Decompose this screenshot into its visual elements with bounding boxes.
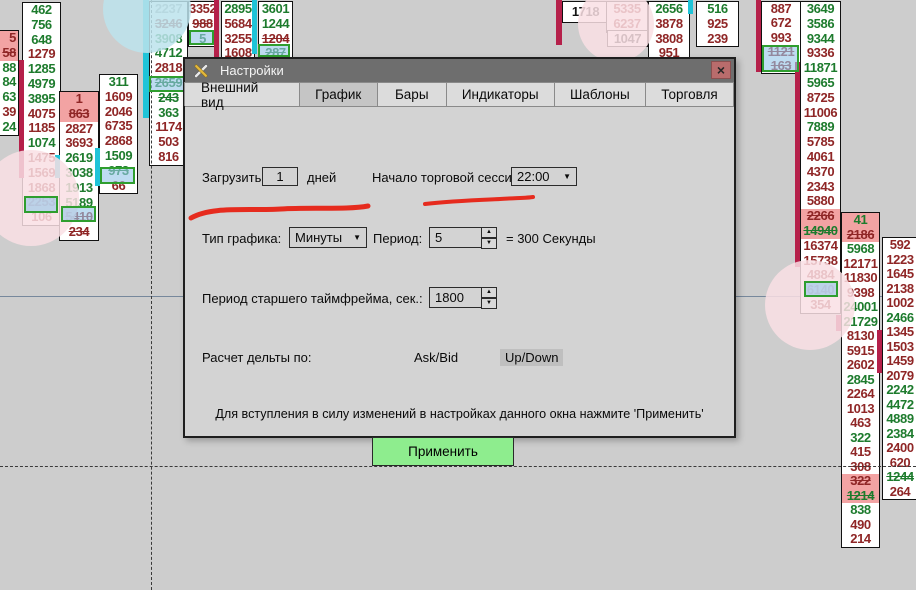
volume-cell: 1718 <box>563 2 608 22</box>
volume-cell: 2818 <box>150 61 187 76</box>
volume-cell: 3895 <box>23 92 60 107</box>
volume-cell: 838 <box>842 503 879 518</box>
volume-cell: 3255 <box>222 32 254 47</box>
volume-cell: 503 <box>150 135 187 150</box>
sell-volume-bar <box>756 0 761 72</box>
volume-cell: 2384 <box>883 427 916 442</box>
volume-cell: 620 <box>883 456 916 471</box>
volume-cell: 3586 <box>801 17 840 32</box>
tab-4[interactable]: Индикаторы <box>446 82 555 106</box>
volume-cell: 3352 <box>189 2 216 17</box>
volume-cell: 9336 <box>801 46 840 61</box>
cluster-column: 2895568432551608 <box>221 1 255 62</box>
volume-cell: 592 <box>883 238 916 253</box>
volume-cell: 2845 <box>842 373 879 388</box>
volume-cell: 1279 <box>23 47 60 62</box>
volume-cell: 462 <box>23 3 60 18</box>
volume-cell: 39 <box>0 105 18 120</box>
cluster-column: 4121865968121711183093982400121729813059… <box>841 212 880 548</box>
buy-volume-bar <box>143 0 149 118</box>
period-input[interactable]: 5 <box>429 227 482 248</box>
sell-volume-bar <box>877 330 882 373</box>
volume-cell: 4889 <box>883 412 916 427</box>
dialog-titlebar[interactable]: Настройки × <box>185 59 734 82</box>
volume-cell: 756 <box>23 18 60 33</box>
seconds-equivalent-label: = 300 Секунды <box>506 231 596 246</box>
sell-volume-bar <box>556 0 562 45</box>
cluster-column: 1718 <box>562 1 609 23</box>
volume-cell: 2659 <box>150 76 187 91</box>
marker-circle <box>578 0 654 62</box>
cluster-column: 3649358693449336118715965872511006788957… <box>800 1 841 314</box>
volume-cell: 264 <box>883 485 916 500</box>
volume-cell: 5189 <box>60 196 98 211</box>
spin-down-button[interactable]: ▼ <box>481 298 497 309</box>
volume-cell: 234 <box>60 225 98 240</box>
cluster-column: 5588884633924 <box>0 30 19 136</box>
volume-cell: 1503 <box>883 340 916 355</box>
volume-cell: 1174 <box>150 120 187 135</box>
cluster-column: 33529885 <box>188 1 217 47</box>
volume-cell: 84 <box>0 75 18 90</box>
volume-cell: 2602 <box>842 358 879 373</box>
cluster-column: 4627566481279128549793895407511851074147… <box>22 2 61 226</box>
tab-6[interactable]: Торговля <box>645 82 734 106</box>
volume-cell: 1913 <box>60 181 98 196</box>
chart-type-label: Тип графика: <box>202 231 281 246</box>
volume-cell: 5785 <box>801 135 840 150</box>
load-label: Загрузить <box>202 170 261 185</box>
cluster-column: 8876729931121163 <box>761 1 801 74</box>
volume-cell: 14940 <box>801 224 840 239</box>
volume-cell: 415 <box>842 445 879 460</box>
volume-cell: 5410 <box>60 210 98 225</box>
volume-cell: 7889 <box>801 120 840 135</box>
marker-circle <box>765 260 855 350</box>
volume-cell: 66 <box>100 179 137 194</box>
dialog-body: Загрузить 1 дней Начало торговой сессии:… <box>185 107 734 439</box>
volume-cell: 1459 <box>883 354 916 369</box>
chevron-down-icon: ▼ <box>563 172 576 181</box>
selected-cell-box <box>149 76 185 92</box>
volume-cell: 4075 <box>23 107 60 122</box>
volume-cell: 1204 <box>259 32 292 47</box>
volume-cell: 3038 <box>60 166 98 181</box>
volume-cell: 672 <box>762 16 800 30</box>
days-label: дней <box>307 170 336 185</box>
volume-cell: 4979 <box>23 77 60 92</box>
volume-cell: 9398 <box>842 286 879 301</box>
selected-cell-box <box>189 30 214 45</box>
volume-cell: 354 <box>801 298 840 313</box>
buy-volume-bar <box>252 0 257 54</box>
volume-cell: 463 <box>842 416 879 431</box>
cluster-column: 360112441204287 <box>258 1 293 62</box>
volume-cell: 5684 <box>222 17 254 32</box>
volume-cell: 2895 <box>222 2 254 17</box>
volume-cell: 988 <box>189 17 216 32</box>
volume-cell: 163 <box>762 59 800 73</box>
volume-cell: 1569 <box>23 166 60 181</box>
volume-cell: 1121 <box>762 45 800 59</box>
settings-dialog: Настройки × Внешний видГрафикБарыИндикат… <box>183 57 736 438</box>
volume-cell: 16374 <box>801 239 840 254</box>
dialog-title: Настройки <box>220 63 284 78</box>
volume-cell: 4712 <box>150 46 187 61</box>
volume-cell: 8130 <box>842 329 879 344</box>
volume-cell: 63 <box>0 90 18 105</box>
volume-cell: 24001 <box>842 300 879 315</box>
cluster-column: 3111609204667352868150997366 <box>99 74 138 194</box>
session-start-select[interactable]: 22:00 ▼ <box>511 167 577 186</box>
tools-icon <box>192 62 210 80</box>
volume-cell: 8725 <box>801 91 840 106</box>
volume-cell: 214 <box>842 532 879 547</box>
volume-cell: 6735 <box>100 119 137 134</box>
volume-cell: 1074 <box>23 136 60 151</box>
volume-cell: 1185 <box>23 121 60 136</box>
volume-cell: 24 <box>0 120 18 135</box>
tab-5[interactable]: Шаблоны <box>554 82 646 106</box>
volume-cell: 1047 <box>608 31 647 46</box>
sell-volume-bar <box>795 62 800 267</box>
period-label: Период: <box>373 231 422 246</box>
volume-cell: 311 <box>100 75 137 90</box>
volume-cell: 816 <box>150 150 187 165</box>
volume-cell: 1509 <box>100 149 137 164</box>
volume-cell: 11830 <box>842 271 879 286</box>
volume-cell: 490 <box>842 518 879 533</box>
volume-cell: 239 <box>697 32 738 47</box>
volume-cell: 5915 <box>842 344 879 359</box>
volume-cell: 2466 <box>883 311 916 326</box>
dialog-tabs: Внешний видГрафикБарыИндикаторыШаблоныТо… <box>185 82 734 107</box>
htf-period-spinner: 1800 ▲ ▼ <box>429 287 497 308</box>
delta-calc-label: Расчет дельты по: <box>202 350 311 365</box>
volume-cell: 1868 <box>23 181 60 196</box>
volume-cell: 11006 <box>801 106 840 121</box>
volume-cell: 1 <box>60 92 98 107</box>
selected-cell-box <box>762 45 799 72</box>
volume-cell: 2253 <box>23 195 60 210</box>
cluster-column: 1047 <box>607 30 648 47</box>
volume-cell: 2827 <box>60 122 98 137</box>
cluster-column: 53356237 <box>606 1 648 33</box>
cluster-column: 18632827369326193038191351895410234 <box>59 91 99 241</box>
cluster-column: 516925239 <box>696 1 739 47</box>
volume-cell: 3693 <box>60 136 98 151</box>
volume-cell: 2186 <box>842 228 879 243</box>
marker-circle <box>0 150 79 246</box>
cluster-column: 265638783808951 <box>648 1 690 62</box>
buy-volume-bar <box>55 155 60 178</box>
chevron-down-icon: ▼ <box>353 233 366 242</box>
volume-cell: 58 <box>0 46 18 61</box>
trading-app-screen: { "dialog": { "title": "Настройки", "clo… <box>0 0 916 590</box>
volume-cell: 2237 <box>150 2 187 17</box>
volume-cell: 1223 <box>883 253 916 268</box>
volume-cell: 3601 <box>259 2 292 17</box>
sell-volume-bar <box>214 0 219 57</box>
volume-cell: 1214 <box>842 489 879 504</box>
spin-up-button[interactable]: ▲ <box>481 227 497 238</box>
buy-volume-bar <box>95 148 100 186</box>
volume-cell: 993 <box>762 31 800 45</box>
volume-cell: 2138 <box>883 282 916 297</box>
volume-cell: 973 <box>100 164 137 179</box>
tab-3[interactable]: Бары <box>377 82 447 106</box>
volume-cell: 3908 <box>150 32 187 47</box>
volume-cell: 516 <box>697 2 738 17</box>
delta-updown-option[interactable]: Up/Down <box>500 349 563 366</box>
selected-cell-box <box>24 196 58 213</box>
volume-cell: 322 <box>842 431 879 446</box>
chart-type-select[interactable]: Минуты ▼ <box>289 227 367 248</box>
close-button[interactable]: × <box>711 61 731 79</box>
volume-cell: 2619 <box>60 151 98 166</box>
volume-cell: 2656 <box>649 2 689 17</box>
apply-note-text: Для вступления в силу изменений в настро… <box>185 407 734 421</box>
volume-cell: 106 <box>23 210 60 225</box>
volume-cell: 41 <box>842 213 879 228</box>
volume-cell: 5965 <box>801 76 840 91</box>
volume-cell: 1645 <box>883 267 916 282</box>
volume-cell: 322 <box>842 474 879 489</box>
volume-cell: 3246 <box>150 17 187 32</box>
volume-cell: 4884 <box>801 268 840 283</box>
volume-cell: 363 <box>150 106 187 121</box>
volume-cell: 1002 <box>883 296 916 311</box>
volume-cell: 12171 <box>842 257 879 272</box>
htf-period-label: Период старшего таймфрейма, сек.: <box>202 291 423 306</box>
volume-cell: 2046 <box>100 105 137 120</box>
volume-cell: 1244 <box>883 470 916 485</box>
volume-cell: 2266 <box>801 209 840 224</box>
volume-cell: 1285 <box>23 62 60 77</box>
volume-cell: 2242 <box>883 383 916 398</box>
volume-cell: 6140 <box>801 283 840 298</box>
volume-cell: 11871 <box>801 61 840 76</box>
volume-cell: 887 <box>762 2 800 16</box>
selected-cell-box <box>258 44 290 57</box>
selected-cell-box <box>100 167 135 184</box>
volume-cell: 3649 <box>801 2 840 17</box>
volume-cell: 4370 <box>801 165 840 180</box>
htf-period-input[interactable]: 1800 <box>429 287 482 308</box>
cluster-column: 5921223164521381002246613451503145920792… <box>882 237 916 500</box>
volume-cell: 4061 <box>801 150 840 165</box>
volume-cell: 243 <box>150 91 187 106</box>
volume-cell: 5968 <box>842 242 879 257</box>
selected-cell-box <box>804 281 838 297</box>
vertical-crosshair-line <box>151 0 152 590</box>
volume-cell: 648 <box>23 33 60 48</box>
volume-cell: 2343 <box>801 180 840 195</box>
volume-cell: 5 <box>0 31 18 46</box>
volume-cell: 1244 <box>259 17 292 32</box>
volume-cell: 308 <box>842 460 879 475</box>
volume-cell: 5335 <box>607 2 647 17</box>
volume-cell: 2079 <box>883 369 916 384</box>
sell-volume-bar <box>19 60 24 178</box>
volume-cell: 1609 <box>100 90 137 105</box>
volume-cell: 88 <box>0 61 18 76</box>
volume-cell: 2868 <box>100 134 137 149</box>
spin-down-button[interactable]: ▼ <box>481 238 497 249</box>
period-spinner: 5 ▲ ▼ <box>429 227 497 248</box>
selected-cell-box <box>61 206 96 222</box>
load-days-input[interactable]: 1 <box>262 167 298 186</box>
tab-1[interactable]: Внешний вид <box>184 82 300 106</box>
volume-cell: 5 <box>189 32 216 47</box>
volume-cell: 3878 <box>649 17 689 32</box>
volume-cell: 15738 <box>801 254 840 269</box>
volume-cell: 2264 <box>842 387 879 402</box>
horizontal-crosshair-line <box>0 466 916 467</box>
volume-cell: 1475 <box>23 151 60 166</box>
session-start-label: Начало торговой сессии: <box>372 170 523 185</box>
volume-cell: 863 <box>60 107 98 122</box>
delta-askbid-option[interactable]: Ask/Bid <box>414 350 458 365</box>
volume-cell: 5880 <box>801 194 840 209</box>
volume-cell: 2400 <box>883 441 916 456</box>
volume-cell: 1345 <box>883 325 916 340</box>
marker-circle <box>103 0 191 53</box>
volume-cell: 9344 <box>801 32 840 47</box>
volume-cell: 1013 <box>842 402 879 417</box>
tab-2[interactable]: График <box>299 82 378 106</box>
volume-cell: 21729 <box>842 315 879 330</box>
volume-cell: 6237 <box>607 17 647 32</box>
buy-volume-bar <box>688 0 693 14</box>
apply-button[interactable]: Применить <box>372 437 514 466</box>
spin-up-button[interactable]: ▲ <box>481 287 497 298</box>
volume-cell: 925 <box>697 17 738 32</box>
sell-volume-bar <box>836 315 841 331</box>
volume-cell: 3808 <box>649 32 689 47</box>
volume-cell: 4472 <box>883 398 916 413</box>
